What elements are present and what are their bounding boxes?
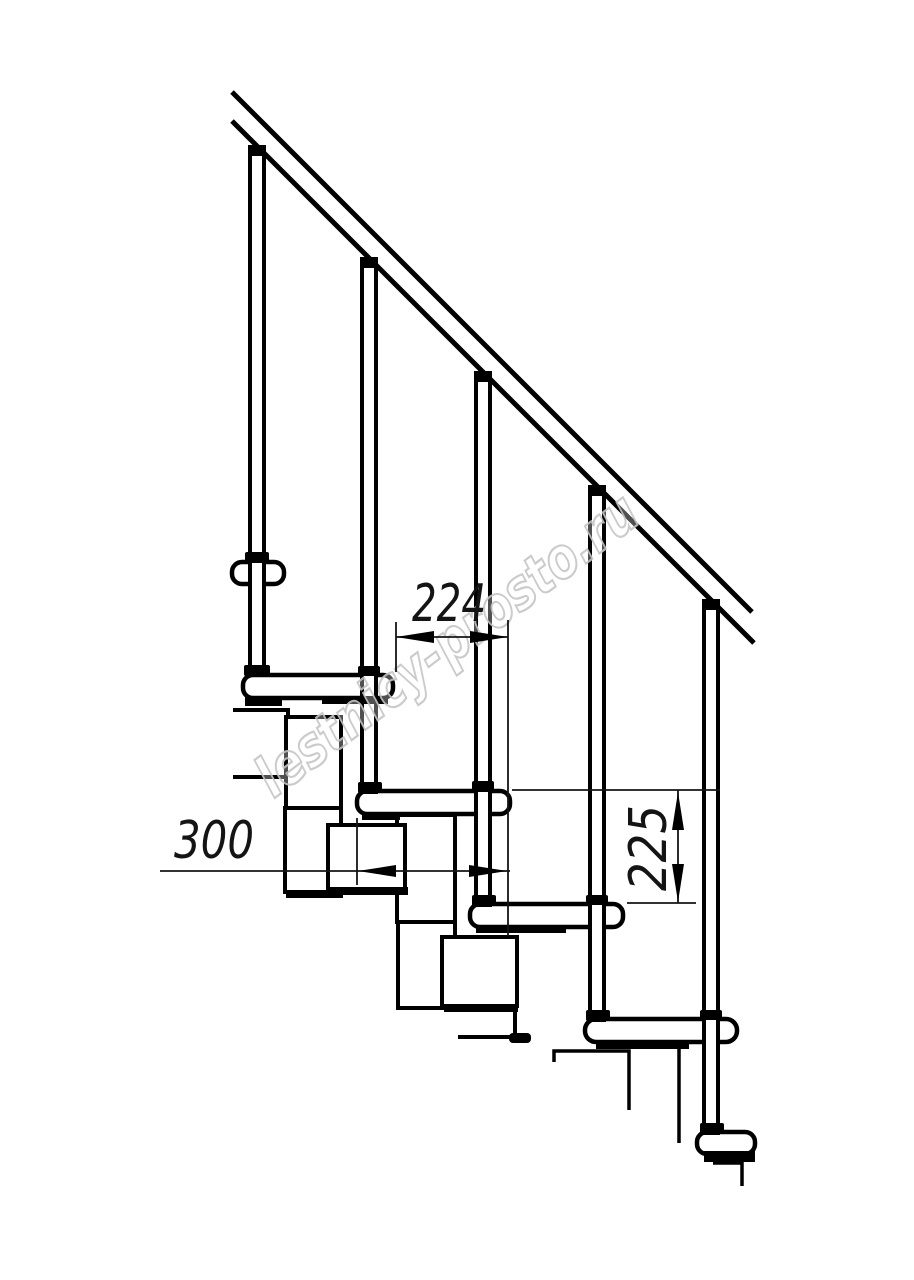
tread-plate-2	[362, 812, 400, 820]
module-box-2a	[328, 825, 405, 889]
tread-plate-4	[596, 1041, 689, 1049]
baluster-foot	[472, 895, 496, 906]
tread-plate-5	[704, 1151, 755, 1162]
baluster-foot	[244, 665, 270, 676]
module-box-4-fill	[458, 1011, 515, 1037]
baluster-5	[702, 599, 720, 1133]
baluster-collar	[586, 895, 608, 905]
baluster-foot	[586, 1010, 610, 1021]
dimension-224-label: 224	[412, 574, 486, 634]
baluster-foot	[358, 782, 382, 793]
baluster-collar	[472, 781, 494, 792]
module-plate	[444, 1004, 518, 1012]
tread-plate-3	[476, 925, 566, 933]
baluster-1	[248, 145, 266, 675]
tread-plate-1a	[245, 697, 282, 706]
module-box-3b	[442, 937, 517, 1006]
technical-drawing-canvas: lestnicy-prosto.ru 224 300 225	[0, 0, 914, 1280]
tread-5	[697, 1132, 755, 1154]
module-plate	[331, 887, 408, 895]
module-foot	[509, 1033, 531, 1043]
staircase-drawing: lestnicy-prosto.ru 224 300 225	[0, 0, 914, 1280]
baluster-collar	[245, 552, 269, 563]
baluster-foot	[700, 1123, 724, 1134]
baluster-collar	[700, 1010, 722, 1020]
dimension-300-label: 300	[174, 811, 254, 871]
dimension-225-label: 225	[619, 805, 679, 891]
